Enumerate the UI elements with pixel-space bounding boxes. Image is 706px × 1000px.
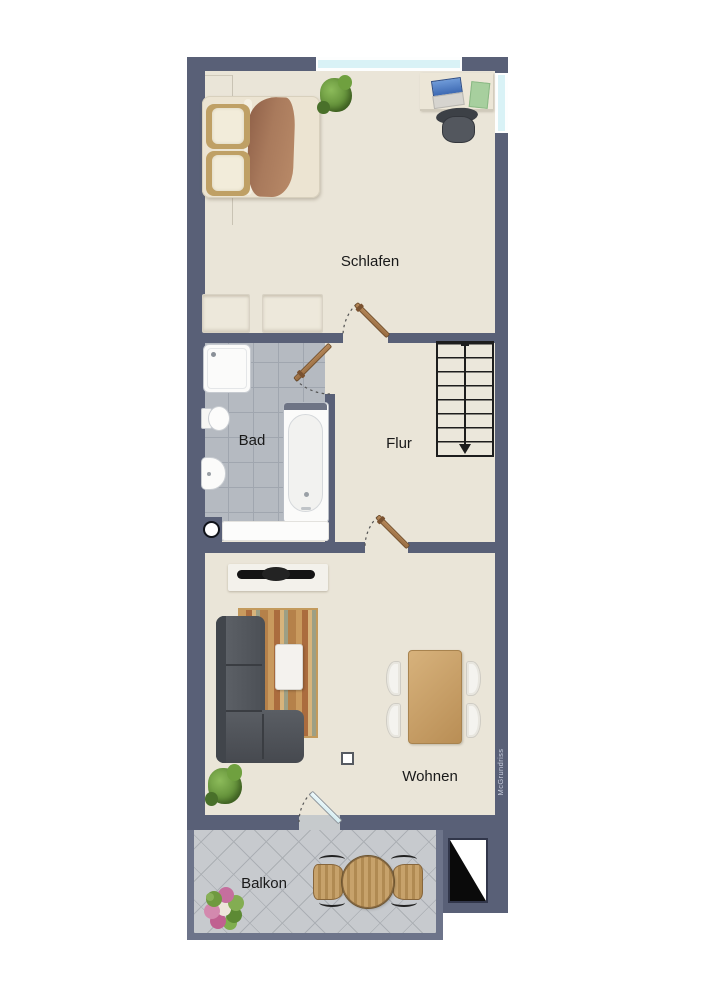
hall-door-swing-arc: [365, 517, 378, 547]
bathroom-door-leaf: [292, 342, 333, 383]
bedroom-door-swing-arc: [343, 304, 356, 336]
bedroom-door-leaf: [353, 301, 391, 339]
balcony-door-leaf: [309, 791, 341, 823]
hall-door-leaf: [375, 514, 411, 550]
floorplan-canvas: Schlafen Bad Flur Wohnen Balkon McGrundr…: [0, 0, 706, 1000]
balcony-door-swing-arc: [299, 793, 311, 822]
bathroom-door-swing-arc: [295, 380, 330, 394]
door-overlay: [0, 0, 706, 1000]
